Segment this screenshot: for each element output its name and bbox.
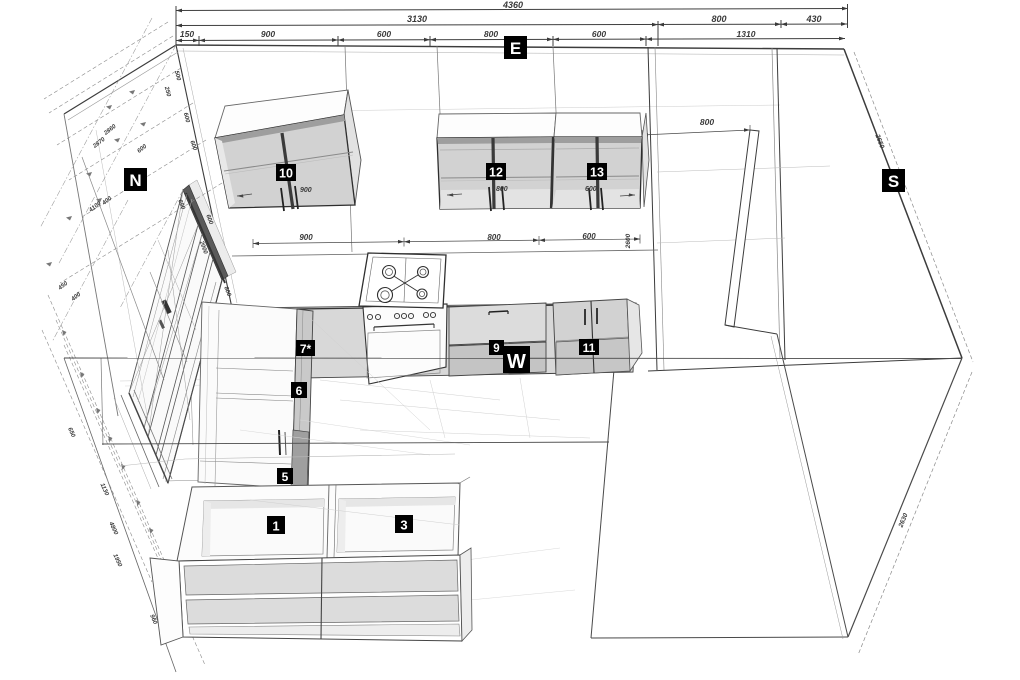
svg-text:900: 900 <box>261 29 275 39</box>
svg-text:13: 13 <box>590 166 604 180</box>
svg-text:900: 900 <box>299 233 313 242</box>
svg-text:S: S <box>888 172 899 191</box>
svg-text:5: 5 <box>282 470 289 484</box>
svg-text:E: E <box>510 39 521 58</box>
svg-text:150: 150 <box>180 29 194 39</box>
svg-text:12: 12 <box>489 166 503 180</box>
svg-text:800: 800 <box>496 186 508 193</box>
svg-text:7*: 7* <box>300 342 312 356</box>
svg-text:4360: 4360 <box>502 0 523 10</box>
svg-text:3: 3 <box>400 518 407 533</box>
svg-text:1310: 1310 <box>737 29 756 39</box>
svg-text:6: 6 <box>296 384 303 398</box>
svg-text:W: W <box>507 351 526 373</box>
svg-text:800: 800 <box>487 233 501 242</box>
svg-text:9: 9 <box>493 343 499 355</box>
svg-text:600: 600 <box>582 232 596 241</box>
svg-text:800: 800 <box>711 14 726 24</box>
svg-text:800: 800 <box>484 29 498 39</box>
svg-text:800: 800 <box>700 117 714 127</box>
svg-text:10: 10 <box>279 167 293 181</box>
svg-text:600: 600 <box>585 186 597 193</box>
svg-text:N: N <box>129 171 141 190</box>
svg-text:600: 600 <box>592 29 606 39</box>
svg-text:900: 900 <box>300 187 312 194</box>
svg-text:430: 430 <box>805 14 821 24</box>
svg-text:11: 11 <box>583 341 596 355</box>
svg-text:3130: 3130 <box>407 14 427 24</box>
svg-text:600: 600 <box>377 29 391 39</box>
svg-text:1: 1 <box>272 519 279 534</box>
svg-text:2600: 2600 <box>625 233 632 249</box>
